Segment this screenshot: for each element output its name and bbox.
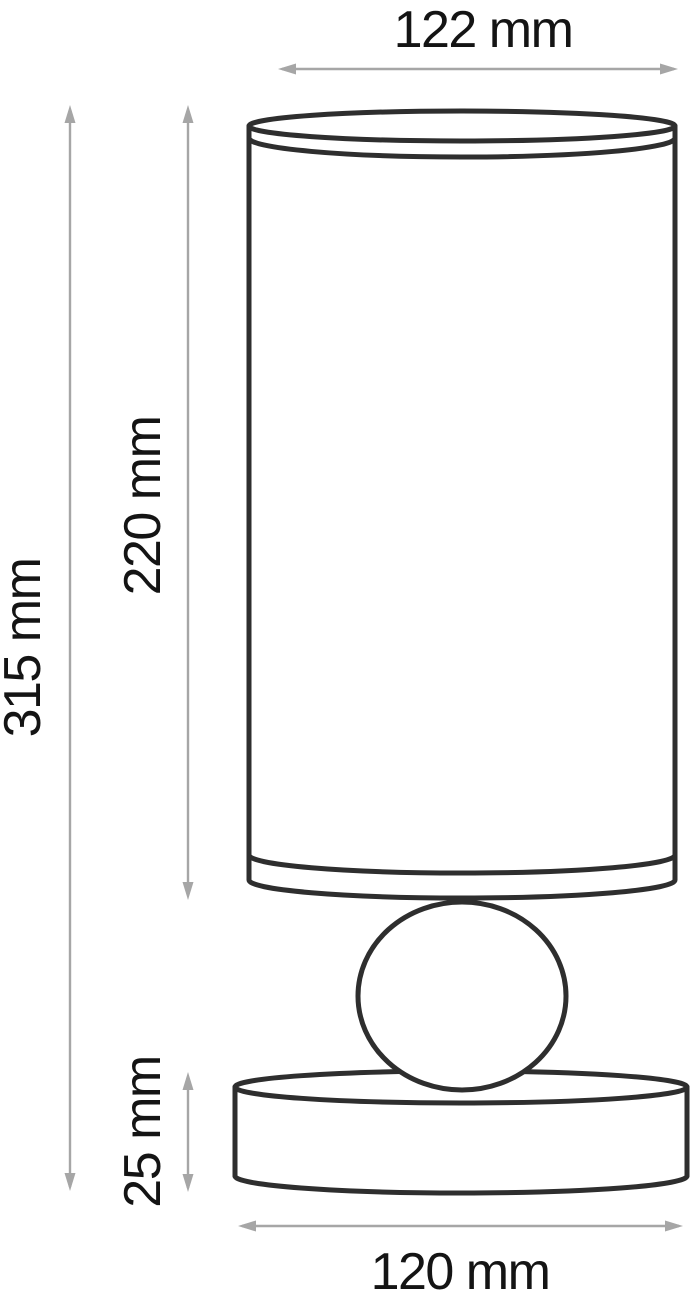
lamp-dimension-diagram: 122 mm 315 mm 220 mm 25 mm 120 mm bbox=[0, 0, 692, 1298]
arrow-up-icon bbox=[65, 105, 76, 123]
dimension-lines bbox=[70, 69, 679, 1226]
arrow-down-icon bbox=[183, 1174, 194, 1192]
arrow-down-icon bbox=[65, 1173, 76, 1191]
arrow-up-icon bbox=[183, 105, 194, 123]
sphere-outline bbox=[358, 902, 566, 1090]
total-height-label: 315 mm bbox=[0, 559, 52, 738]
diagram-canvas: 122 mm 315 mm 220 mm 25 mm 120 mm bbox=[0, 0, 692, 1298]
base-bottom-arc bbox=[235, 1176, 687, 1193]
shade-bottom-band bbox=[249, 855, 675, 898]
arrow-right-icon bbox=[660, 64, 678, 75]
base-diameter-label: 120 mm bbox=[371, 1243, 550, 1298]
arrow-up-icon bbox=[183, 1072, 194, 1090]
lamp-drawing bbox=[235, 111, 687, 1193]
arrow-right-icon bbox=[665, 1221, 683, 1232]
arrow-left-icon bbox=[238, 1221, 256, 1232]
arrow-down-icon bbox=[183, 882, 194, 900]
shade-diameter-label: 122 mm bbox=[394, 1, 573, 59]
shade-height-label: 220 mm bbox=[114, 417, 172, 596]
arrow-left-icon bbox=[278, 64, 296, 75]
shade-top-ellipse bbox=[249, 111, 675, 141]
sphere-joint bbox=[358, 902, 566, 1090]
lampshade bbox=[249, 111, 675, 898]
base-height-label: 25 mm bbox=[114, 1056, 172, 1207]
